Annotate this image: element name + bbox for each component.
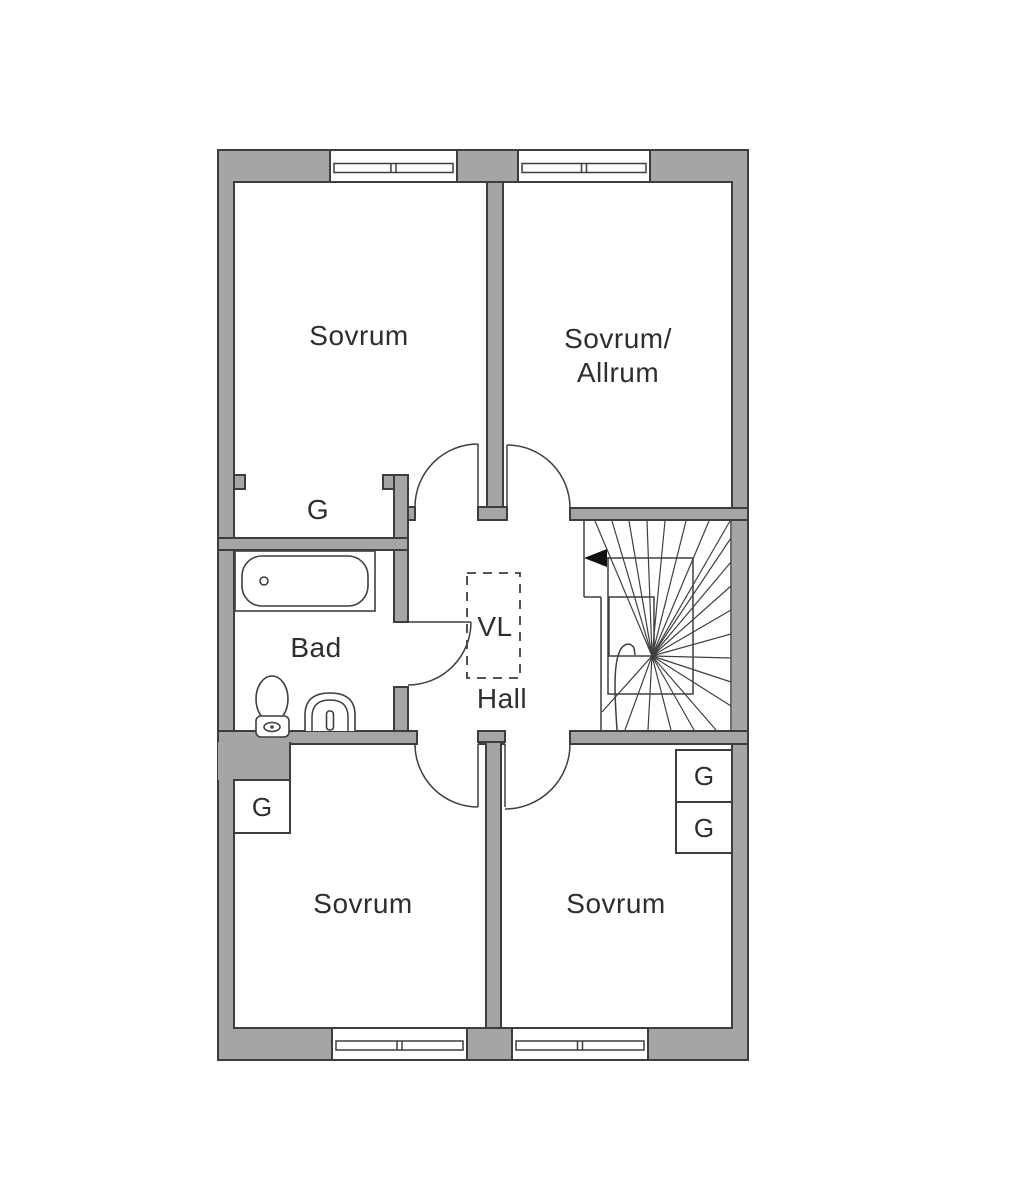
wall-top-middle: [487, 182, 503, 507]
wall-bottom-middle: [486, 742, 501, 1028]
room-label-sovrum-allrum-line2: Allrum: [577, 357, 659, 388]
window-icon: [330, 150, 457, 182]
wall-above-stairs: [570, 508, 748, 520]
door-opening-top-right: [507, 507, 570, 521]
wardrobe-label-bottom-left: G: [252, 792, 272, 822]
window-icon: [518, 150, 650, 182]
door-opening-bottom-right: [505, 731, 570, 747]
bathtub-icon: [235, 551, 375, 611]
room-label-bad: Bad: [290, 632, 341, 663]
room-label-sovrum-allrum-line1: Sovrum/: [564, 323, 672, 354]
wall-below-stairs: [570, 731, 748, 744]
window-icon: [512, 1028, 648, 1060]
wall-bottom-middle-cap: [478, 731, 505, 742]
shaft-label-vl: VL: [477, 611, 512, 642]
floor-plan-page: Sovrum Sovrum/ Allrum G Bad VL Hall Sovr…: [0, 0, 1024, 1181]
wall-duct-block: [218, 742, 290, 780]
room-sovrum-top-left: [234, 182, 487, 538]
room-label-hall: Hall: [477, 683, 527, 714]
wardrobe-label-top: G: [307, 494, 329, 525]
room-label-sovrum-bottom-left: Sovrum: [313, 888, 412, 919]
floor-plan-svg: Sovrum Sovrum/ Allrum G Bad VL Hall Sovr…: [0, 0, 1024, 1181]
wall-bad-top: [218, 538, 408, 550]
wardrobe-label-right-1: G: [694, 761, 714, 791]
door-opening-bottom-left: [417, 731, 478, 747]
window-icon: [332, 1028, 467, 1060]
wall-notch-a: [383, 475, 394, 489]
room-label-sovrum-bottom-right: Sovrum: [566, 888, 665, 919]
room-label-sovrum-top-left: Sovrum: [309, 320, 408, 351]
toilet-icon: [256, 676, 289, 737]
sink-icon: [305, 693, 355, 731]
wall-notch-left: [234, 475, 245, 489]
wall-notch-b: [408, 507, 415, 520]
wall-top-middle-foot: [478, 507, 507, 520]
door-opening-bad: [392, 622, 408, 687]
wardrobe-label-right-2: G: [694, 813, 714, 843]
